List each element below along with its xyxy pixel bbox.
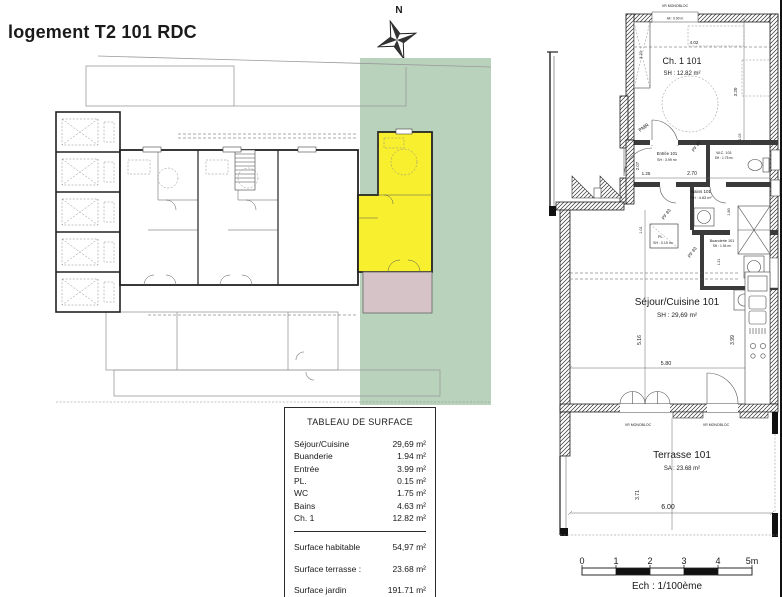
vr-monobloc-left: VR MONOBLOC (625, 423, 652, 427)
north-label: N (395, 5, 402, 16)
room-area-bains: SH : 4.63 m² (690, 196, 712, 200)
vr-monobloc-right: VR MONOBLOC (703, 423, 730, 427)
dim-buanderie-h: 1.21 (717, 259, 721, 266)
svg-text:4: 4 (715, 556, 720, 566)
room-area-sejour: SH : 29,69 m² (657, 312, 698, 319)
scale-bar: 0 1 2 3 4 5m Ech : 1/100ème (576, 552, 766, 596)
dim-wc-side: 1.03 (738, 134, 742, 141)
dim-terrasse-h: 3.71 (635, 490, 641, 500)
room-label-entree: Entrée 101 (657, 151, 678, 156)
svg-text:5m: 5m (746, 556, 759, 566)
door-label-pf2: PF 83 (661, 207, 672, 220)
unit-terrace (363, 272, 432, 313)
ch1-window: All : 0.90 m (652, 12, 698, 24)
room-label-ch1: Ch. 1 101 (662, 56, 701, 66)
table-separator (294, 531, 426, 532)
table-row: PL.0.15 m² (294, 475, 426, 487)
room-wc: W.C. 101 SH : 1.75 m² 1.03 (715, 134, 769, 172)
kitchen-counter (745, 272, 770, 404)
surface-table-title: TABLEAU DE SURFACE (294, 416, 426, 429)
room-label-buanderie: Buanderie 101 (710, 239, 735, 243)
room-area-entree: SH : 3.99 m² (657, 158, 677, 162)
dim-terrasse-w: 6.00 (661, 504, 675, 511)
table-row: WC1.75 m² (294, 487, 426, 499)
vr-monobloc-label-top: VR MONOBLOC (662, 4, 689, 8)
scale-segments (582, 565, 752, 575)
room-area-pl: SH : 0.15 m² (653, 241, 673, 245)
table-row: Ch. 112.82 m² (294, 512, 426, 524)
room-area-terrasse: SA : 23.68 m² (664, 466, 700, 472)
table-total-row: Surface jardin191.71 m² (294, 584, 426, 596)
garage-block (56, 112, 120, 312)
room-label-bains: Bains 101 (691, 189, 712, 194)
dim-ch1-closet: 3.20 (639, 51, 643, 58)
site-plan (48, 50, 493, 405)
dim-ch1-width: 4.02 (690, 40, 699, 45)
room-label-sejour: Séjour/Cuisine 101 (635, 297, 720, 308)
entry-porch (547, 52, 622, 216)
floor-plan-detail: All : 0.90 m VR MONOBLOC 3.20 4.02 Ch. 1… (542, 0, 782, 557)
table-row: Entrée3.99 m² (294, 463, 426, 475)
pmr-label: PMR (638, 122, 651, 134)
svg-text:2: 2 (647, 556, 652, 566)
room-area-buanderie: SH : 1.94 m² (713, 244, 732, 248)
page-title: logement T2 101 RDC (8, 22, 197, 43)
svg-text:0: 0 (579, 556, 584, 566)
dim-hall-w: 2.70 (687, 171, 697, 177)
scale-caption: Ech : 1/100ème (632, 581, 702, 592)
room-label-terrasse: Terrasse 101 (653, 450, 711, 461)
dim-entree-w: 1.25 (642, 171, 651, 176)
window-sill-label: All : 0.90 m (667, 17, 684, 21)
room-terrasse: VR MONOBLOC VR MONOBLOC Terrasse 101 SA … (560, 412, 778, 537)
dim-sejour-h: 5.16 (637, 335, 643, 345)
dim-sejour-w: 5.80 (661, 361, 672, 367)
dim-ch1-height: 3.20 (733, 87, 738, 96)
dim-pl-h: 1.01 (639, 226, 643, 233)
svg-text:3: 3 (681, 556, 686, 566)
door-label-pf3: PF 83 (687, 245, 698, 258)
room-area-ch1: SH : 12.82 m² (663, 71, 700, 77)
surface-table: TABLEAU DE SURFACE Séjour/Cuisine29,69 m… (284, 407, 436, 597)
dim-bains-side: 1.80 (727, 208, 731, 215)
ch1-closet: 3.20 (634, 22, 650, 88)
table-row: Séjour/Cuisine29,69 m² (294, 438, 426, 450)
room-label-pl: PL. (658, 235, 664, 239)
room-area-wc: SH : 1.75 m² (715, 156, 734, 160)
room-label-wc: W.C. 101 (716, 151, 732, 155)
table-row: Buanderie1.94 m² (294, 450, 426, 462)
svg-text:1: 1 (613, 556, 618, 566)
plan-sheet: logement T2 101 RDC N (0, 0, 782, 597)
dim-kitchen-h: 3.99 (730, 335, 736, 345)
table-row: Bains4.63 m² (294, 500, 426, 512)
room-ch1: 4.02 Ch. 1 101 SH : 12.82 m² 3.20 PMR (634, 18, 770, 148)
dim-entree-h: 2.07 (635, 161, 640, 170)
scale-ticks: 0 1 2 3 4 5m (579, 556, 758, 566)
building-units (120, 147, 358, 285)
table-total-row: Surface habitable54,97 m² (294, 541, 426, 553)
table-total-row: Surface terrasse :23.68 m² (294, 563, 426, 575)
